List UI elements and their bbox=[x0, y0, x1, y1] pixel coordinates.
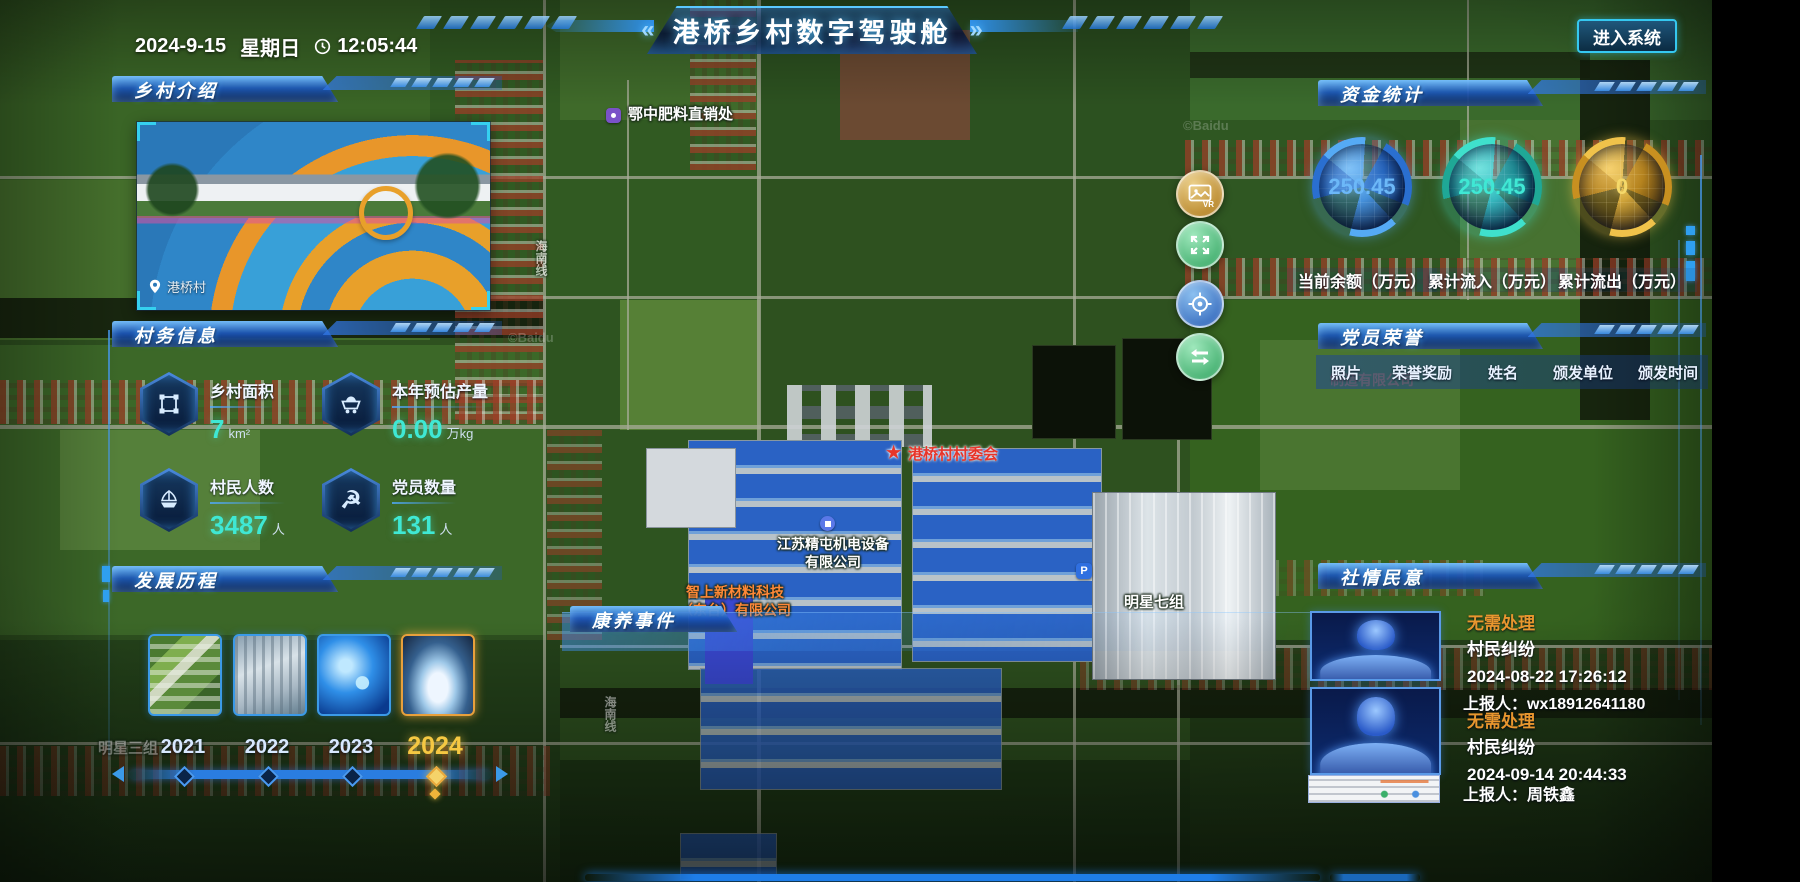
photo-corner bbox=[471, 291, 490, 310]
stat-unit: km² bbox=[228, 426, 250, 441]
expand-icon bbox=[1188, 233, 1212, 257]
crosshair-icon bbox=[1187, 291, 1213, 317]
map-label-group7: 明星七组 bbox=[1124, 594, 1184, 613]
vr-label: VR bbox=[1203, 200, 1214, 209]
company-pin-icon[interactable] bbox=[820, 516, 835, 531]
gauge-value: 250.45 bbox=[1312, 137, 1412, 237]
page-title: 港桥乡村数字驾驶舱 bbox=[673, 11, 952, 50]
parking-icon[interactable]: P bbox=[1076, 563, 1092, 579]
opinion-status: 无需处理 bbox=[1467, 611, 1627, 637]
timeline-next-arrow[interactable] bbox=[496, 766, 508, 782]
locate-button[interactable] bbox=[1176, 280, 1224, 328]
datetime-display: 2024-9-15 星期日 12:05:44 bbox=[135, 32, 417, 61]
vr-view-button[interactable]: VR bbox=[1176, 170, 1224, 218]
panel-header-village-intro: 乡村介绍 bbox=[112, 76, 502, 106]
photo-corner bbox=[137, 122, 156, 141]
sync-arrows-icon bbox=[1187, 346, 1213, 368]
gauge-total-inflow: 250.45 bbox=[1442, 137, 1542, 237]
gauge-value: 0 bbox=[1572, 137, 1672, 237]
development-thumb-2023[interactable] bbox=[317, 634, 391, 716]
right-frame-line bbox=[1700, 155, 1702, 725]
reporter-avatar bbox=[1310, 611, 1441, 681]
opinion-reporter: 上报人：周铁鑫 bbox=[1463, 781, 1575, 805]
panel-title: 发展历程 bbox=[134, 567, 218, 593]
panel-header-development: 发展历程 bbox=[112, 566, 502, 596]
road-label-hainan: 海南线 bbox=[533, 240, 548, 276]
map-label-company-jingtun[interactable]: 江苏精屯机电设备 有限公司 bbox=[768, 536, 898, 571]
title-right-chevron: » bbox=[970, 16, 983, 44]
village-committee-star-icon[interactable]: ★ bbox=[886, 443, 901, 463]
stat-unit: 人 bbox=[439, 519, 452, 538]
gauge-value: 250.45 bbox=[1442, 137, 1542, 237]
development-thumb-2022[interactable] bbox=[233, 634, 307, 716]
stat-value: 3487 bbox=[210, 510, 268, 541]
clock-icon bbox=[314, 38, 331, 55]
header-banner: « 港桥乡村数字驾驶舱 » bbox=[552, 4, 1072, 56]
panel-title: 资金统计 bbox=[1340, 81, 1424, 107]
gauge-label-balance: 当前余额（万元） bbox=[1287, 268, 1437, 292]
stat-villager-count: 村民人数 3487 人 bbox=[140, 468, 285, 541]
stat-unit: 人 bbox=[272, 519, 285, 538]
panel-title: 党员荣誉 bbox=[1340, 324, 1424, 350]
opinion-status: 无需处理 bbox=[1467, 709, 1627, 735]
stat-value: 7 bbox=[210, 414, 224, 445]
reporter-avatar bbox=[1310, 687, 1441, 775]
time-text: 12:05:44 bbox=[337, 35, 417, 58]
ring-sculpture bbox=[359, 186, 413, 240]
column-honor: 荣誉奖励 bbox=[1376, 362, 1468, 383]
bottom-glow-bar bbox=[585, 874, 1320, 881]
opinion-item[interactable]: 无需处理 村民纠纷 2024-09-14 20:44:33 bbox=[1310, 687, 1627, 788]
opinion-attachment-thumbnail[interactable] bbox=[1308, 775, 1440, 803]
map-watermark: ©Baidu bbox=[508, 330, 554, 345]
year-2023[interactable]: 2023 bbox=[306, 736, 396, 759]
village-photo[interactable]: 港桥村 bbox=[137, 122, 490, 310]
cart-icon bbox=[325, 375, 377, 433]
stat-label: 党员数量 bbox=[392, 474, 456, 504]
photo-corner bbox=[137, 291, 156, 310]
panel-header-health-events: 康养事件 bbox=[570, 606, 760, 636]
development-thumb-2021[interactable] bbox=[148, 634, 222, 716]
photo-corner bbox=[471, 122, 490, 141]
right-frame-square bbox=[1686, 226, 1695, 235]
year-2021[interactable]: 2021 bbox=[138, 736, 228, 759]
column-issuing-unit: 颁发单位 bbox=[1538, 362, 1628, 383]
screen-black-margin bbox=[1712, 0, 1800, 882]
left-frame-square bbox=[102, 566, 110, 582]
map-label-fertilizer-shop[interactable]: 鄂中肥料直销处 bbox=[628, 106, 733, 125]
header-stripes-right bbox=[1066, 16, 1219, 29]
gauge-current-balance: 250.45 bbox=[1312, 137, 1412, 237]
panel-header-funds: 资金统计 bbox=[1318, 80, 1706, 110]
stat-value: 131 bbox=[392, 510, 435, 541]
opinion-item[interactable]: 无需处理 村民纠纷 2024-08-22 17:26:12 bbox=[1310, 611, 1627, 690]
stat-value: 0.00 bbox=[392, 414, 443, 445]
stat-label: 乡村面积 bbox=[210, 378, 274, 408]
column-photo: 照片 bbox=[1316, 362, 1376, 383]
party-icon: ☭ bbox=[325, 471, 377, 529]
column-name: 姓名 bbox=[1468, 362, 1538, 383]
switch-layer-button[interactable] bbox=[1176, 333, 1224, 381]
gauge-total-outflow: 0 bbox=[1572, 137, 1672, 237]
enter-system-button[interactable]: 进入系统 bbox=[1577, 19, 1677, 53]
stat-party-member-count: ☭ 党员数量 131 人 bbox=[322, 468, 456, 541]
gauge-label-outflow: 累计流出（万元） bbox=[1547, 268, 1697, 292]
development-thumb-2024[interactable] bbox=[401, 634, 475, 716]
stat-label: 村民人数 bbox=[210, 474, 285, 504]
area-icon bbox=[143, 375, 195, 433]
column-issue-date: 颁发时间 bbox=[1628, 362, 1708, 383]
opinion-type: 村民纠纷 bbox=[1467, 735, 1627, 761]
dashboard-screen: ©Baidu ©Baidu 鄂中肥料直销处 ★ 港桥村村委会 江苏精屯机电设备 … bbox=[0, 0, 1800, 882]
title-left-chevron: « bbox=[641, 16, 654, 44]
fertilizer-shop-pin-icon[interactable] bbox=[606, 108, 621, 123]
panel-title: 村务信息 bbox=[134, 322, 218, 348]
panel-header-public-opinion: 社情民意 bbox=[1318, 563, 1706, 593]
road-label-hainan: 海南线 bbox=[602, 696, 617, 732]
weekday-text: 星期日 bbox=[240, 32, 300, 61]
party-honors-table-header: 照片 荣誉奖励 姓名 颁发单位 颁发时间 bbox=[1316, 355, 1708, 389]
photo-caption: 港桥村 bbox=[149, 277, 206, 296]
fullscreen-button[interactable] bbox=[1176, 221, 1224, 269]
right-frame-square bbox=[1686, 241, 1695, 255]
map-label-village-committee[interactable]: 港桥村村委会 bbox=[908, 446, 998, 465]
date-text: 2024-9-15 bbox=[135, 35, 226, 58]
timeline-prev-arrow[interactable] bbox=[112, 766, 124, 782]
boat-icon bbox=[143, 471, 195, 529]
stat-label: 本年预估产量 bbox=[392, 378, 488, 408]
year-2024[interactable]: 2024 bbox=[390, 732, 480, 761]
panel-header-party-honors: 党员荣誉 bbox=[1318, 323, 1706, 353]
left-frame-line bbox=[108, 330, 110, 760]
map-watermark: ©Baidu bbox=[1183, 118, 1229, 133]
panel-header-village-affairs: 村务信息 bbox=[112, 321, 502, 351]
opinion-type: 村民纠纷 bbox=[1467, 637, 1627, 663]
right-frame-line bbox=[1678, 240, 1680, 700]
panel-title: 社情民意 bbox=[1340, 564, 1424, 590]
panel-title: 康养事件 bbox=[592, 607, 676, 633]
stat-village-area: 乡村面积 7 km² bbox=[140, 372, 274, 445]
bottom-glow-bar bbox=[1330, 874, 1420, 881]
gauge-label-inflow: 累计流入（万元） bbox=[1417, 268, 1567, 292]
stat-estimated-yield: 本年预估产量 0.00 万kg bbox=[322, 372, 488, 445]
year-2022[interactable]: 2022 bbox=[222, 736, 312, 759]
stat-unit: 万kg bbox=[447, 423, 474, 442]
panel-title: 乡村介绍 bbox=[134, 77, 218, 103]
left-frame-square bbox=[103, 590, 109, 602]
